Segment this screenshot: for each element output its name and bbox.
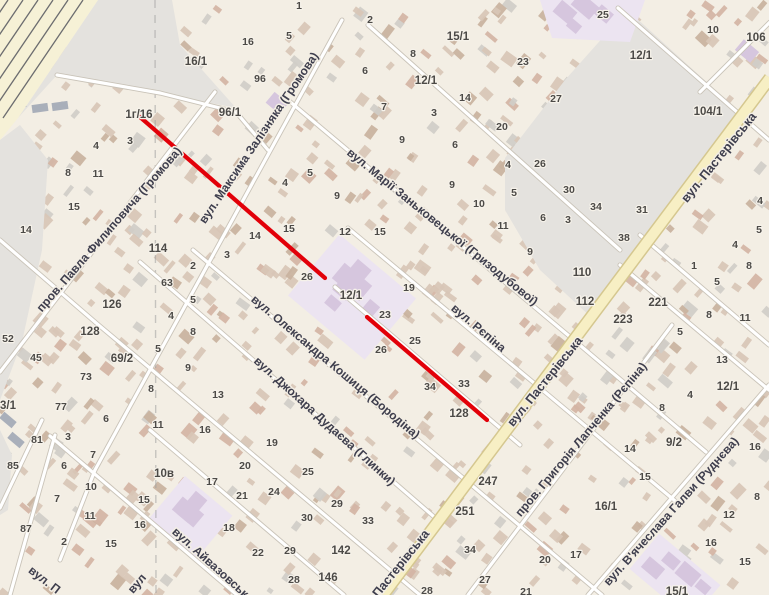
house-number: 3 xyxy=(224,249,230,261)
house-number: 8 xyxy=(190,326,196,338)
house-number: 12 xyxy=(723,509,735,521)
house-number: 128 xyxy=(449,408,469,420)
house-number: 29 xyxy=(331,498,343,510)
house-number: 2 xyxy=(61,536,67,548)
house-number: 87 xyxy=(20,523,32,535)
house-number: 4 xyxy=(757,195,763,207)
house-number: 15 xyxy=(105,538,117,550)
house-number: 52 xyxy=(2,333,14,345)
house-number: 126 xyxy=(102,299,121,311)
house-number: 17 xyxy=(206,476,218,488)
house-number: 9 xyxy=(449,179,455,191)
map-canvas[interactable]: 169616/196/11г/163415215/1812/1146732096… xyxy=(0,0,769,595)
house-number: 34 xyxy=(464,544,476,556)
house-number: 34 xyxy=(590,201,602,213)
house-number: 12/1 xyxy=(717,381,740,393)
house-number: 33 xyxy=(458,378,470,390)
house-number: 69/2 xyxy=(111,353,133,365)
house-number: 27 xyxy=(550,93,562,105)
house-number: 8 xyxy=(148,383,154,395)
house-number: 3 xyxy=(431,107,437,119)
house-number: 8 xyxy=(706,309,712,321)
house-number: 13 xyxy=(212,389,224,401)
house-number: 4 xyxy=(687,389,693,401)
house-number: 9 xyxy=(334,190,340,202)
house-number: 221 xyxy=(648,297,668,309)
house-number: 34 xyxy=(424,381,436,393)
house-number: 3 xyxy=(565,214,571,226)
house-number: 5 xyxy=(286,30,292,42)
house-number: 247 xyxy=(478,476,497,488)
house-number: 16 xyxy=(749,441,761,453)
house-number: 15 xyxy=(68,201,80,213)
house-number: 104/1 xyxy=(694,106,723,118)
house-number: 30 xyxy=(301,512,313,524)
house-number: 3/1 xyxy=(0,400,17,412)
house-number: 9 xyxy=(185,362,191,374)
house-number: 19 xyxy=(403,282,415,294)
house-number: 38 xyxy=(618,232,630,244)
house-number: 1г/16 xyxy=(125,109,152,121)
house-number: 11 xyxy=(84,510,95,522)
house-number: 6 xyxy=(452,139,458,151)
house-number: 17 xyxy=(570,549,582,561)
house-number: 5 xyxy=(155,343,161,355)
house-number: 12/1 xyxy=(340,290,363,302)
house-number: 21 xyxy=(236,490,248,502)
house-number: 146 xyxy=(318,572,337,584)
house-number: 24 xyxy=(268,486,280,498)
house-number: 96 xyxy=(254,73,266,85)
map-root: 169616/196/11г/163415215/1812/1146732096… xyxy=(0,0,769,595)
house-number: 22 xyxy=(252,547,264,559)
house-number: 14 xyxy=(20,224,32,236)
house-number: 15 xyxy=(138,494,150,506)
house-number: 7 xyxy=(54,493,60,505)
house-number: 5 xyxy=(511,187,517,199)
house-number: 23 xyxy=(379,309,391,321)
house-number: 4 xyxy=(93,140,99,152)
house-number: 12 xyxy=(339,226,351,238)
house-number: 14 xyxy=(624,443,636,455)
house-number: 19 xyxy=(266,437,278,449)
house-number: 18 xyxy=(223,522,235,534)
house-number: 96/1 xyxy=(219,107,242,119)
house-number: 7 xyxy=(381,101,387,113)
house-number: 29 xyxy=(284,545,296,557)
house-number: 5 xyxy=(756,224,762,236)
house-number: 23 xyxy=(517,56,529,68)
house-number: 15/1 xyxy=(447,31,470,43)
house-number: 85 xyxy=(7,460,19,472)
house-number: 128 xyxy=(80,326,100,338)
house-number: 16 xyxy=(134,519,146,531)
house-number: 5 xyxy=(714,276,720,288)
house-number: 1 xyxy=(296,0,302,12)
house-number: 12/1 xyxy=(415,75,438,87)
house-number: 112 xyxy=(576,296,595,308)
house-number: 4 xyxy=(505,159,511,171)
house-number: 28 xyxy=(421,585,433,595)
house-number: 26 xyxy=(301,271,313,283)
house-number: 2 xyxy=(190,260,196,272)
house-number: 4 xyxy=(732,239,738,251)
house-number: 10в xyxy=(154,468,174,480)
house-number: 25 xyxy=(409,335,421,347)
house-number: 26 xyxy=(534,158,546,170)
house-number: 30 xyxy=(563,184,575,196)
house-number: 7 xyxy=(90,449,96,461)
house-number: 10 xyxy=(85,481,97,493)
house-number: 14 xyxy=(459,92,471,104)
house-number: 11 xyxy=(92,168,103,180)
house-number: 9 xyxy=(527,246,533,258)
house-number: 13 xyxy=(716,354,728,366)
house-number: 5 xyxy=(677,326,683,338)
house-number: 16/1 xyxy=(185,56,208,68)
house-number: 251 xyxy=(455,506,475,518)
house-number: 106 xyxy=(746,32,765,44)
house-number: 10 xyxy=(473,198,485,210)
house-number: 10 xyxy=(707,24,719,36)
house-number: 27 xyxy=(479,574,491,586)
house-number: 11 xyxy=(497,220,508,232)
house-number: 8 xyxy=(754,491,760,503)
house-number: 5 xyxy=(190,294,196,306)
house-number: 20 xyxy=(496,121,508,133)
house-number: 15 xyxy=(374,226,386,238)
house-number: 8 xyxy=(659,402,665,414)
house-number: 6 xyxy=(103,413,109,425)
house-number: 81 xyxy=(31,434,43,446)
house-number: 15 xyxy=(739,556,751,568)
house-number: 8 xyxy=(65,167,71,179)
house-number: 63 xyxy=(161,277,173,289)
house-number: 2 xyxy=(367,14,373,26)
house-number: 6 xyxy=(540,212,546,224)
house-number: 11 xyxy=(739,312,750,324)
house-number: 20 xyxy=(539,554,551,566)
house-number: 142 xyxy=(331,545,350,557)
house-number: 6 xyxy=(61,460,67,472)
house-number: 16 xyxy=(242,36,254,48)
house-number: 9 xyxy=(399,134,405,146)
house-number: 11 xyxy=(152,419,163,431)
house-number: 15 xyxy=(639,471,651,483)
house-number: 1 xyxy=(691,260,697,272)
house-number: 4 xyxy=(168,310,174,322)
house-number: 9/2 xyxy=(666,437,682,449)
house-number: 77 xyxy=(55,401,67,413)
house-number: 21 xyxy=(520,586,532,595)
house-number: 8 xyxy=(410,48,416,60)
house-number: 26 xyxy=(375,344,387,356)
house-number: 33 xyxy=(362,515,374,527)
house-number: 6 xyxy=(362,65,368,77)
house-number: 73 xyxy=(80,371,92,383)
house-number: 8 xyxy=(746,260,752,272)
house-number: 114 xyxy=(149,243,168,255)
house-number: 20 xyxy=(239,460,251,472)
house-number: 25 xyxy=(302,466,314,478)
house-number: 3 xyxy=(65,431,71,443)
house-number: 45 xyxy=(30,352,42,364)
house-number: 5 xyxy=(307,167,313,179)
house-number: 223 xyxy=(613,314,632,326)
house-number: 15 xyxy=(283,223,295,235)
house-number: 110 xyxy=(573,267,592,279)
house-number: 31 xyxy=(636,204,648,216)
house-number: 16/1 xyxy=(595,501,618,513)
house-number: 15/1 xyxy=(666,586,689,595)
house-number: 16 xyxy=(705,537,717,549)
house-number: 14 xyxy=(249,230,261,242)
house-number: 4 xyxy=(282,177,288,189)
house-number: 3 xyxy=(127,135,133,147)
house-number: 25 xyxy=(597,9,609,21)
house-number: 12/1 xyxy=(630,50,653,62)
house-number: 28 xyxy=(288,574,300,586)
house-number: 16 xyxy=(199,424,211,436)
